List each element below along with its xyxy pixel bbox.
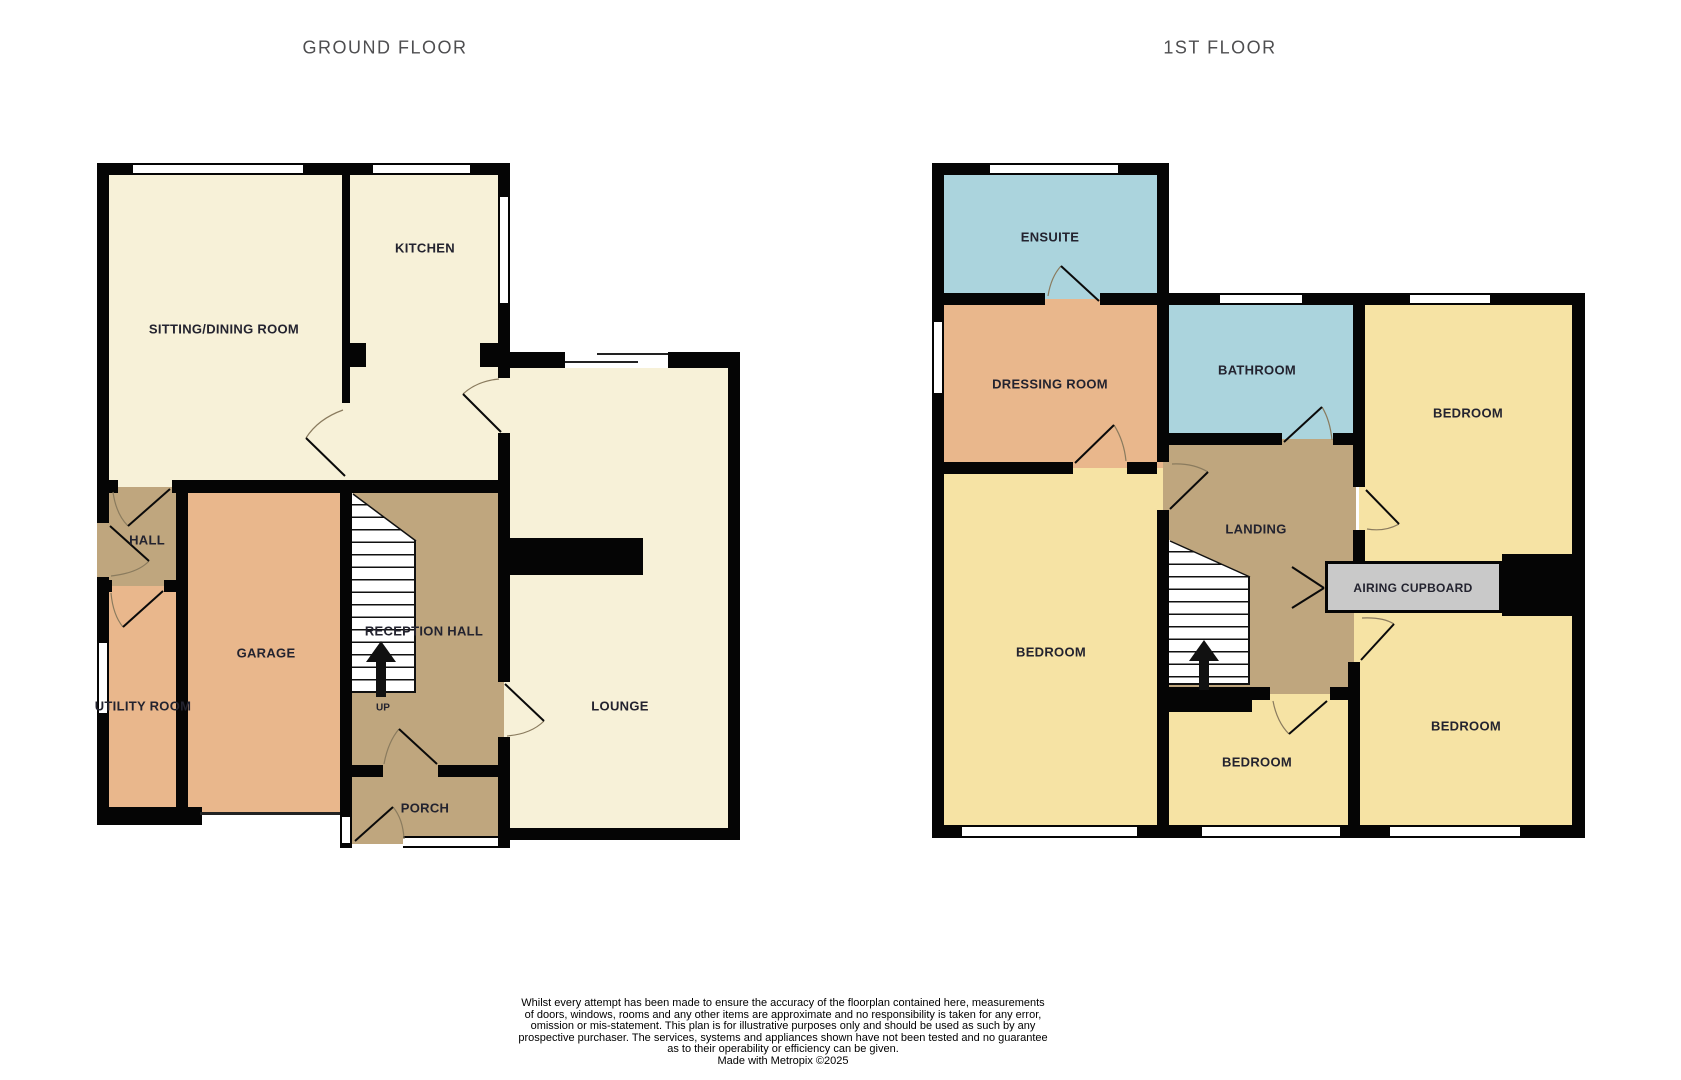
floorplan-canvas: GROUND FLOOR 1ST FLOOR [0,0,1681,1080]
disclaimer-made-with: Made with Metropix ©2025 [518,1056,1047,1068]
stair-diagonals [353,494,1250,577]
room-label-bedroom-main: BEDROOM [1016,645,1086,660]
room-label-reception-hall: RECEPTION HALL [365,624,483,639]
room-label-hall: HALL [129,533,165,548]
room-label-lounge: LOUNGE [591,699,648,714]
room-label-landing: LANDING [1225,522,1286,537]
door-symbols-layer [0,0,1681,1080]
stairs-up-label: UP [376,703,390,714]
room-label-utility: UTILITY ROOM [95,699,192,714]
stair-up-arrows [366,640,1219,697]
room-label-bathroom: BATHROOM [1218,363,1296,378]
room-label-bedroom-front: BEDROOM [1433,406,1503,421]
room-label-airing-cupboard: AIRING CUPBOARD [1353,581,1472,595]
room-label-garage: GARAGE [237,646,296,661]
room-label-porch: PORCH [401,801,449,816]
up-arrow-icon [366,641,396,697]
door-leaves [110,266,1399,841]
room-label-bedroom-rear: BEDROOM [1431,719,1501,734]
room-label-bedroom-middle: BEDROOM [1222,755,1292,770]
up-arrow-icon [1189,640,1219,690]
disclaimer-line: Whilst every attempt has been made to en… [518,998,1047,1010]
room-label-kitchen: KITCHEN [395,241,455,256]
room-label-sitting-dining: SITTING/DINING ROOM [149,322,299,337]
door-arcs [111,266,1399,839]
room-label-ensuite: ENSUITE [1021,230,1079,245]
room-label-dressing-room: DRESSING ROOM [992,377,1108,392]
disclaimer-text: Whilst every attempt has been made to en… [518,998,1047,1068]
